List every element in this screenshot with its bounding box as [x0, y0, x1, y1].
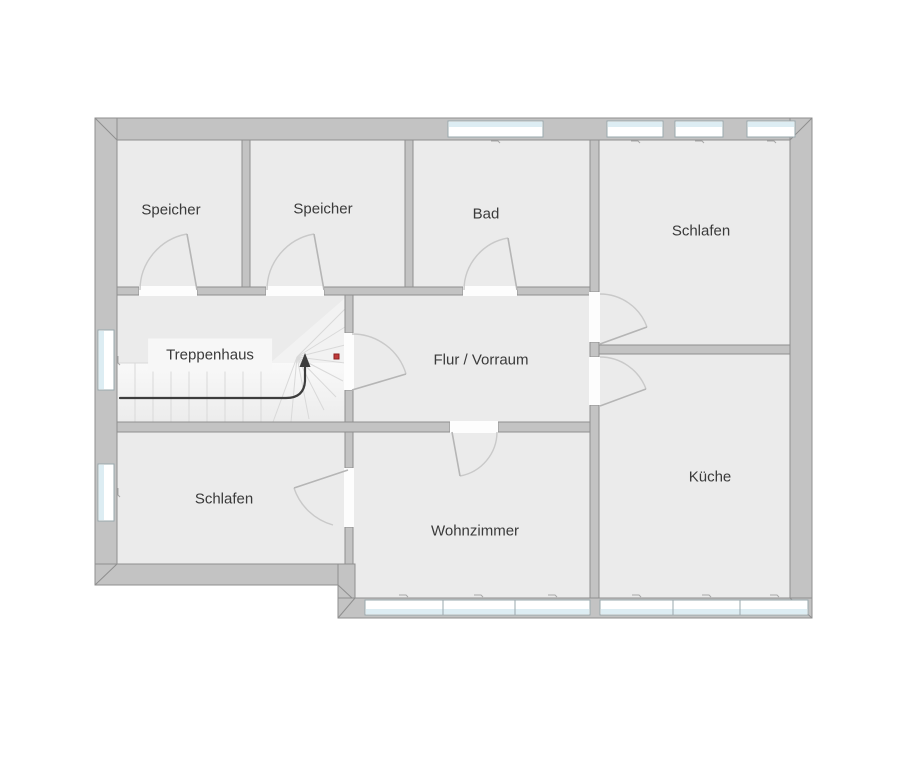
room-label-speicher-2: Speicher — [293, 201, 352, 218]
room-label-speicher-1: Speicher — [141, 202, 200, 219]
room-label-treppenhaus: Treppenhaus — [148, 339, 272, 372]
stair-start-marker — [334, 354, 339, 359]
room-label-flur-vorraum: Flur / Vorraum — [433, 352, 528, 369]
room-label-schlafen-bottom: Schlafen — [195, 491, 253, 508]
room-label-schlafen-top: Schlafen — [672, 223, 730, 240]
room-label-kueche: Küche — [689, 469, 732, 486]
room-label-bad: Bad — [473, 206, 500, 223]
room-label-wohnzimmer: Wohnzimmer — [431, 523, 519, 540]
floor-plan-drawing — [0, 0, 922, 757]
floor-plan-canvas: Speicher Speicher Bad Schlafen Treppenha… — [0, 0, 922, 757]
